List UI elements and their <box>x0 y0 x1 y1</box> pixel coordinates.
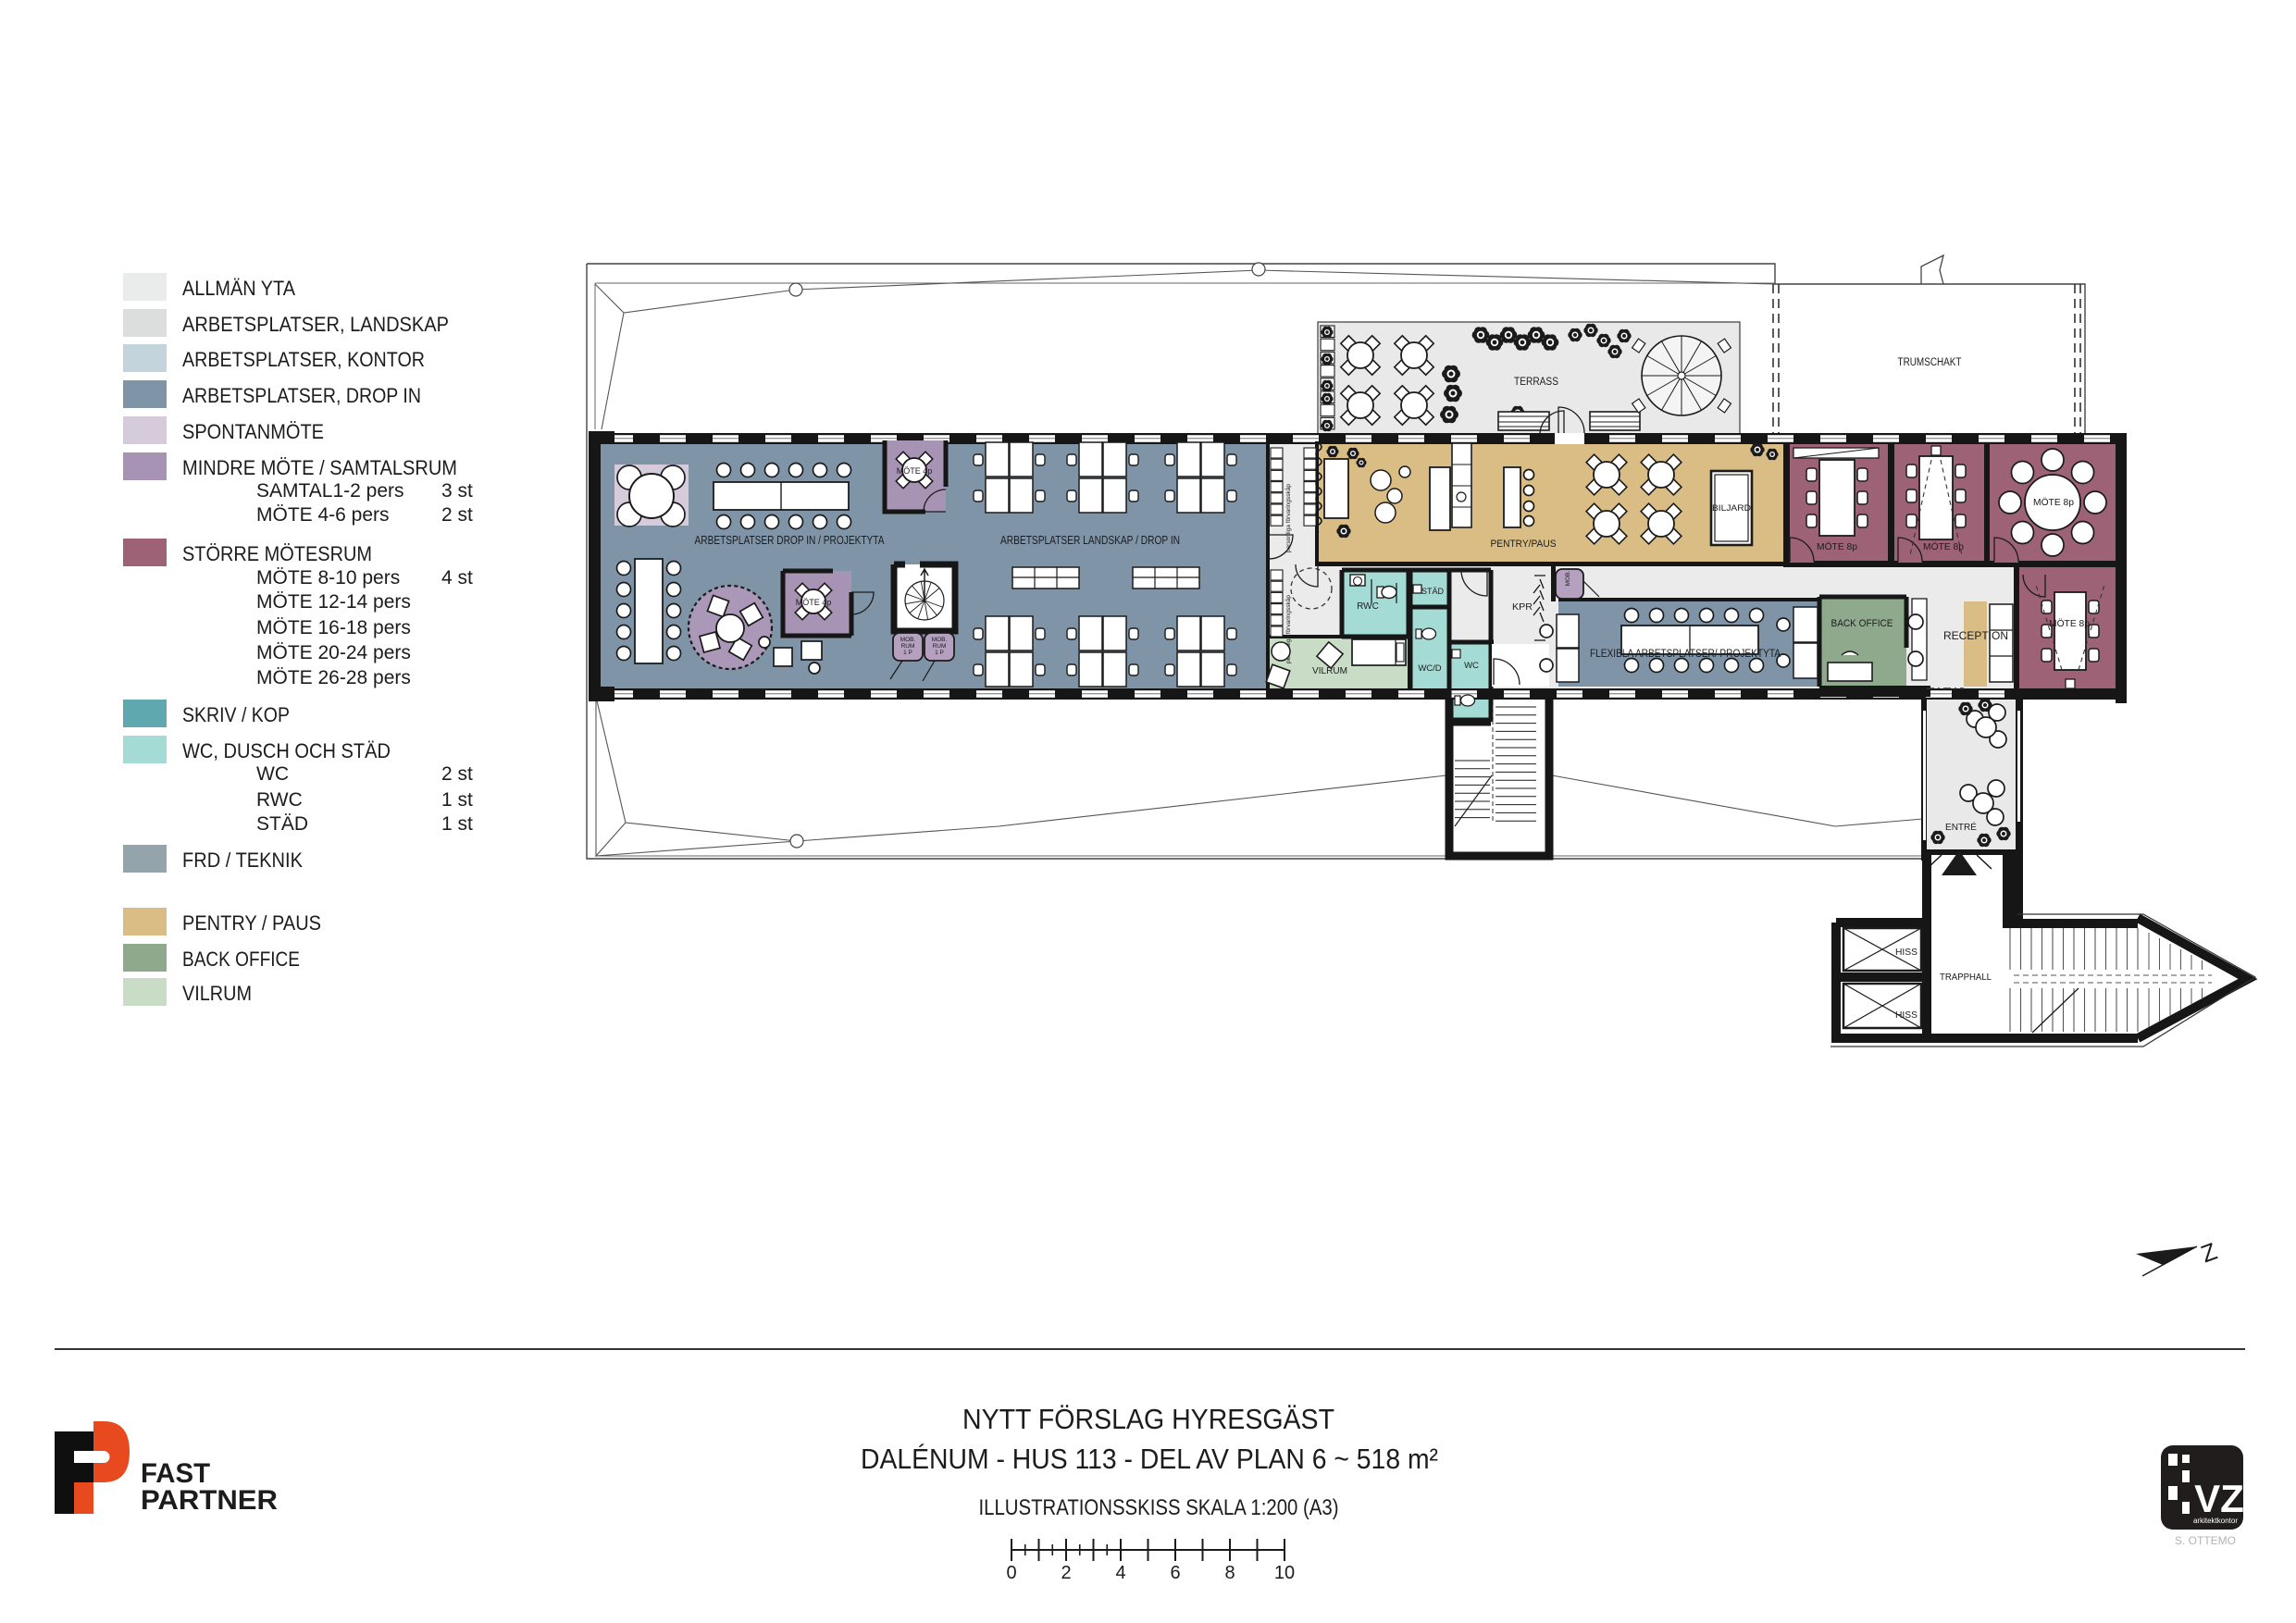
svg-text:4 st: 4 st <box>441 567 473 588</box>
svg-text:2 st: 2 st <box>441 504 473 526</box>
svg-text:SAMTAL1-2 pers: SAMTAL1-2 pers <box>256 480 404 502</box>
svg-text:MÖTE 16-18 pers: MÖTE 16-18 pers <box>256 617 411 638</box>
svg-text:ARBETSPLATSER, KONTOR: ARBETSPLATSER, KONTOR <box>182 348 425 371</box>
svg-text:ARBETSPLATSER DROP IN / PROJEK: ARBETSPLATSER DROP IN / PROJEKTYTA <box>695 533 885 547</box>
svg-text:WC: WC <box>256 763 289 785</box>
svg-text:MÖTE 20-24 pers: MÖTE 20-24 pers <box>256 642 411 663</box>
svg-text:MÖTE 26-28 pers: MÖTE 26-28 pers <box>256 667 411 688</box>
svg-text:PENTRY / PAUS: PENTRY / PAUS <box>182 911 321 935</box>
svg-text:TRUMSCHAKT: TRUMSCHAKT <box>1898 357 1962 368</box>
svg-text:ENTRÉ: ENTRÉ <box>1945 821 1977 833</box>
svg-text:BACK OFFICE: BACK OFFICE <box>1831 618 1893 629</box>
svg-text:2 st: 2 st <box>441 763 473 785</box>
svg-text:BACK OFFICE: BACK OFFICE <box>182 948 300 971</box>
svg-text:ILLUSTRATIONSSKISS SKALA 1:200: ILLUSTRATIONSSKISS SKALA 1:200 (A3) <box>979 1495 1339 1520</box>
svg-text:STÄD: STÄD <box>256 813 308 835</box>
svg-text:MÖTE 4-6 pers: MÖTE 4-6 pers <box>256 504 390 526</box>
svg-text:ALLMÄN YTA: ALLMÄN YTA <box>182 277 295 300</box>
svg-text:FRD / TEKNIK: FRD / TEKNIK <box>182 849 303 872</box>
svg-text:1 P: 1 P <box>903 650 912 656</box>
svg-text:TRAPPHALL: TRAPPHALL <box>1940 972 1992 983</box>
svg-text:4: 4 <box>1115 1563 1125 1583</box>
svg-text:PARTNER: PARTNER <box>141 1485 278 1516</box>
svg-text:MOB.: MOB. <box>1565 571 1571 587</box>
svg-text:WC, DUSCH OCH STÄD: WC, DUSCH OCH STÄD <box>182 739 391 762</box>
svg-text:RWC: RWC <box>256 789 303 811</box>
svg-text:MÖTE 8p: MÖTE 8p <box>2049 618 2090 629</box>
svg-text:MOB.: MOB. <box>900 637 916 643</box>
svg-text:HISS: HISS <box>1895 948 1917 958</box>
svg-text:STÖRRE MÖTESRUM: STÖRRE MÖTESRUM <box>182 542 372 565</box>
svg-text:S. OTTEMO: S. OTTEMO <box>2175 1534 2236 1547</box>
svg-text:0: 0 <box>1006 1563 1016 1583</box>
svg-text:TERRASS: TERRASS <box>1514 377 1558 388</box>
svg-text:KPR: KPR <box>1512 601 1533 613</box>
svg-text:FLEXIBLA ARBETSPLATSER/ PROJEK: FLEXIBLA ARBETSPLATSER/ PROJEKTYTA <box>1590 649 1781 660</box>
svg-text:ARBETSPLATSER, DROP IN: ARBETSPLATSER, DROP IN <box>182 384 421 407</box>
svg-text:BILJARD: BILJARD <box>1712 503 1752 513</box>
svg-text:MINDRE MÖTE / SAMTALSRUM: MINDRE MÖTE / SAMTALSRUM <box>182 456 457 479</box>
svg-text:1 st: 1 st <box>441 813 473 835</box>
svg-text:SPONTANMÖTE: SPONTANMÖTE <box>182 420 324 443</box>
svg-text:8: 8 <box>1224 1563 1235 1583</box>
svg-text:MÖTE 8p: MÖTE 8p <box>1923 541 1964 552</box>
svg-text:personliga förvaringsskåp: personliga förvaringsskåp <box>1285 484 1292 552</box>
svg-text:STÄD: STÄD <box>1421 587 1445 596</box>
svg-text:arkitektkontor: arkitektkontor <box>2193 1517 2238 1525</box>
svg-text:MÖTE 4p: MÖTE 4p <box>796 598 832 607</box>
svg-text:MÖTE 8p: MÖTE 8p <box>2033 497 2074 508</box>
svg-text:VILRUM: VILRUM <box>182 982 252 1005</box>
svg-text:ARBETSPLATSER LANDSKAP / DROP: ARBETSPLATSER LANDSKAP / DROP IN <box>1000 533 1180 547</box>
svg-text:ARBETSPLATSER, LANDSKAP: ARBETSPLATSER, LANDSKAP <box>182 313 449 336</box>
svg-text:RUM: RUM <box>933 643 947 650</box>
svg-text:6: 6 <box>1170 1563 1180 1583</box>
svg-text:MÖTE 4p: MÖTE 4p <box>897 466 933 476</box>
svg-text:3 st: 3 st <box>441 480 473 502</box>
svg-text:1 P: 1 P <box>935 650 944 656</box>
svg-text:VILRUM: VILRUM <box>1312 665 1347 676</box>
svg-text:10: 10 <box>1274 1563 1295 1583</box>
svg-text:RUM: RUM <box>901 643 915 650</box>
svg-text:MÖTE 8p: MÖTE 8p <box>1817 541 1857 552</box>
svg-text:MÖTE 8-10 pers: MÖTE 8-10 pers <box>256 567 400 588</box>
svg-text:MOB.: MOB. <box>932 637 948 643</box>
svg-text:DALÉNUM - HUS 113 - DEL AV PLA: DALÉNUM - HUS 113 - DEL AV PLAN 6 ~ 518 … <box>861 1443 1438 1475</box>
svg-text:RWC: RWC <box>1357 601 1379 612</box>
svg-text:SKRIV / KOP: SKRIV / KOP <box>182 703 290 726</box>
svg-text:NYTT FÖRSLAG HYRESGÄST: NYTT FÖRSLAG HYRESGÄST <box>962 1403 1334 1435</box>
svg-text:RECEPTION: RECEPTION <box>1943 631 2008 642</box>
svg-text:1 st: 1 st <box>441 789 473 811</box>
svg-text:HISS: HISS <box>1895 1010 1917 1021</box>
svg-text:MÖTE 12-14 pers: MÖTE 12-14 pers <box>256 591 411 613</box>
svg-text:WC/D: WC/D <box>1418 663 1441 674</box>
svg-text:2: 2 <box>1061 1563 1071 1583</box>
svg-text:VZ: VZ <box>2194 1477 2244 1520</box>
svg-text:WC: WC <box>1464 661 1479 671</box>
svg-text:PENTRY/PAUS: PENTRY/PAUS <box>1491 539 1557 550</box>
